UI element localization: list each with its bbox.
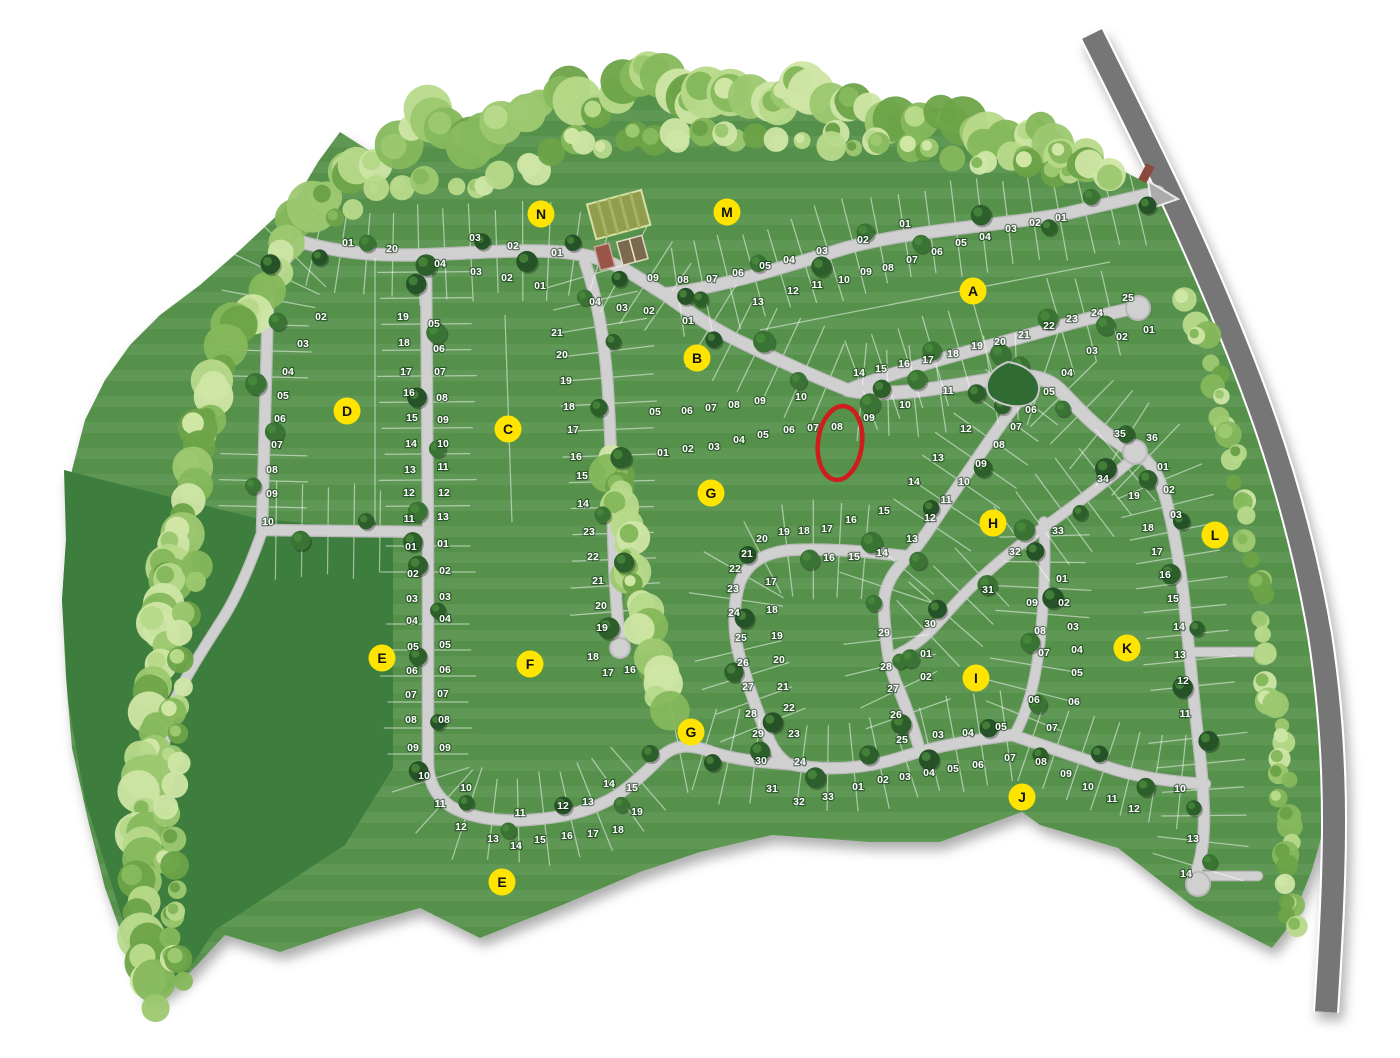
lot-number-A-24[interactable]: 24 [1091,307,1103,319]
lot-number-C-09[interactable]: 09 [437,414,449,426]
lot-number-A-16[interactable]: 16 [898,358,910,370]
lot-number-I-02[interactable]: 02 [920,671,932,683]
lot-number-G-27[interactable]: 27 [887,683,899,695]
lot-number-C-06[interactable]: 06 [433,343,445,355]
section-badge-L[interactable]: L [1202,522,1229,549]
lot-number-I-05[interactable]: 05 [995,721,1007,733]
lot-number-G-upper-08[interactable]: 08 [831,421,843,433]
lot-number-D-01[interactable]: 01 [342,237,354,249]
lot-number-D-09[interactable]: 09 [266,488,278,500]
section-badge-J[interactable]: J [1009,784,1036,811]
svg-text:H: H [988,515,998,531]
lot-number-F-17[interactable]: 17 [602,667,614,679]
lot-number-A-23[interactable]: 23 [1066,313,1078,325]
lot-number-K-19[interactable]: 19 [1128,490,1140,502]
lot-number-G-17[interactable]: 17 [821,523,833,535]
section-badge-H[interactable]: H [980,510,1007,537]
lot-number-I-03[interactable]: 03 [932,729,944,741]
lot-number-G-16[interactable]: 16 [845,514,857,526]
lot-number-B-02[interactable]: 02 [643,305,655,317]
lot-number-B-05[interactable]: 05 [649,406,661,418]
section-badge-D[interactable]: D [334,398,361,425]
lot-number-G-19[interactable]: 19 [778,526,790,538]
lot-number-G-32[interactable]: 32 [793,796,805,808]
lot-number-F-17[interactable]: 17 [587,828,599,840]
svg-text:F: F [526,656,535,672]
lot-number-L-02[interactable]: 02 [1163,484,1175,496]
lot-number-I-08[interactable]: 08 [1034,625,1046,637]
lot-number-I-06[interactable]: 06 [1028,694,1040,706]
lot-number-N-03[interactable]: 03 [469,232,481,244]
lot-number-J-04[interactable]: 04 [923,767,935,779]
lot-number-J-05[interactable]: 05 [947,763,959,775]
section-badge-G[interactable]: G [678,719,705,746]
lot-number-F-06[interactable]: 06 [439,664,451,676]
svg-text:C: C [503,421,513,437]
lot-number-K-15[interactable]: 15 [1167,593,1179,605]
lot-number-C-12[interactable]: 12 [438,487,450,499]
cul-de-sac [611,639,629,657]
lot-number-G-28[interactable]: 28 [745,708,757,720]
section-badge-C[interactable]: C [495,416,522,443]
lot-number-A-12[interactable]: 12 [787,285,799,297]
lot-number-B-04[interactable]: 04 [589,296,601,308]
lot-number-K-07[interactable]: 07 [1046,722,1058,734]
lot-number-E-04[interactable]: 04 [406,615,418,627]
lot-number-C-13[interactable]: 13 [437,511,449,523]
lot-number-D-11[interactable]: 11 [403,513,414,525]
svg-text:G: G [686,724,697,740]
lot-number-H-col-08[interactable]: 08 [993,439,1005,451]
lot-number-A-08[interactable]: 08 [882,262,894,274]
lot-number-M-07[interactable]: 07 [706,273,718,285]
lot-number-J-12[interactable]: 12 [1128,803,1140,815]
lot-number-I-07[interactable]: 07 [1038,647,1050,659]
lot-number-N-02[interactable]: 02 [501,272,513,284]
lot-number-F-07[interactable]: 07 [437,688,449,700]
lot-number-K-04[interactable]: 04 [1071,644,1083,656]
lot-number-K-13[interactable]: 13 [1174,649,1186,661]
lot-number-A-13[interactable]: 13 [752,296,764,308]
lot-number-A-09[interactable]: 09 [860,266,872,278]
lot-number-C-17[interactable]: 17 [567,424,579,436]
section-badge-I[interactable]: I [963,665,990,692]
lot-number-J-07[interactable]: 07 [1004,752,1016,764]
lot-number-G-18[interactable]: 18 [798,525,810,537]
lot-number-C-14[interactable]: 14 [577,498,589,510]
lot-number-H-col-13[interactable]: 13 [906,533,918,545]
lot-number-E-11[interactable]: 11 [434,798,445,810]
lot-number-I-01[interactable]: 01 [920,648,932,660]
lot-number-G-23[interactable]: 23 [788,728,800,740]
lot-number-E-09[interactable]: 09 [407,742,419,754]
lot-number-H-col-06[interactable]: 06 [1025,404,1037,416]
lot-number-K-10[interactable]: 10 [1174,783,1186,795]
lot-number-B-10[interactable]: 10 [795,391,807,403]
lot-number-A-05[interactable]: 05 [955,237,967,249]
lot-number-K-17[interactable]: 17 [1151,546,1163,558]
lot-number-C-05[interactable]: 05 [428,318,440,330]
lot-number-K-06[interactable]: 06 [1068,696,1080,708]
lot-number-A-14[interactable]: 14 [853,367,865,379]
lot-number-G-15[interactable]: 15 [878,505,890,517]
lot-number-G-20[interactable]: 20 [773,654,785,666]
lot-number-A-03[interactable]: 03 [1005,223,1017,235]
lot-number-M-02[interactable]: 02 [857,234,869,246]
svg-text:J: J [1018,789,1026,805]
lot-number-D-20[interactable]: 20 [386,243,398,255]
lot-number-D-15[interactable]: 15 [406,412,418,424]
lot-number-H-col-02[interactable]: 02 [1116,331,1128,343]
svg-text:D: D [342,403,352,419]
lot-number-B-06[interactable]: 06 [681,405,693,417]
lot-number-M-01[interactable]: 01 [899,218,911,230]
lot-number-A-07[interactable]: 07 [906,254,918,266]
lot-number-G-16[interactable]: 16 [823,552,835,564]
lot-number-C-11[interactable]: 11 [437,461,448,473]
lot-number-A-04[interactable]: 04 [979,231,991,243]
lot-number-B-07[interactable]: 07 [705,402,717,414]
svg-text:N: N [536,206,546,222]
lot-number-H-col-10[interactable]: 10 [899,399,911,411]
lot-number-K-12[interactable]: 12 [1177,675,1189,687]
lot-number-C-08[interactable]: 08 [436,392,448,404]
lot-number-J-06[interactable]: 06 [972,759,984,771]
lot-number-A-17[interactable]: 17 [922,354,934,366]
lot-number-D-10[interactable]: 10 [262,516,274,528]
lot-number-H-col-07[interactable]: 07 [1010,421,1022,433]
lot-number-G-33[interactable]: 33 [822,791,834,803]
svg-text:L: L [1211,527,1220,543]
lot-number-G-30[interactable]: 30 [755,755,767,767]
lot-number-K-14[interactable]: 14 [1180,868,1192,880]
lot-number-G-17[interactable]: 17 [765,576,777,588]
lot-number-E-06[interactable]: 06 [406,665,418,677]
lot-number-G-22[interactable]: 22 [783,702,795,714]
lot-number-G-25[interactable]: 25 [735,632,747,644]
lot-number-F-11[interactable]: 11 [514,807,525,819]
lot-number-B-01[interactable]: 01 [682,315,694,327]
lot-number-E-05[interactable]: 05 [407,641,419,653]
lot-number-D-16[interactable]: 16 [403,387,415,399]
lot-number-G-25[interactable]: 25 [896,734,908,746]
lot-number-M-05[interactable]: 05 [759,260,771,272]
lot-number-G-15[interactable]: 15 [848,551,860,563]
lot-number-J-10[interactable]: 10 [1082,781,1094,793]
lot-number-G-24[interactable]: 24 [794,756,806,768]
lot-number-F-21[interactable]: 21 [592,575,604,587]
lot-number-D-14[interactable]: 14 [405,438,417,450]
lot-number-K-05[interactable]: 05 [1071,667,1083,679]
lot-number-C-20[interactable]: 20 [556,349,568,361]
svg-text:B: B [692,350,702,366]
lot-number-A-18[interactable]: 18 [947,348,959,360]
lot-number-J-03[interactable]: 03 [899,771,911,783]
lot-number-K-14[interactable]: 14 [1173,621,1185,633]
lot-number-D-07[interactable]: 07 [271,439,283,451]
lot-number-D-02[interactable]: 02 [315,311,327,323]
lot-number-A-01[interactable]: 01 [1055,212,1067,224]
lot-number-A-22[interactable]: 22 [1043,320,1055,332]
lot-number-G-29[interactable]: 29 [878,627,890,639]
section-badge-K[interactable]: K [1114,635,1141,662]
lot-number-G-21[interactable]: 21 [777,681,789,693]
lot-number-H-ridge-33[interactable]: 33 [1052,525,1064,537]
lot-number-F-13[interactable]: 13 [582,796,594,808]
lot-number-H-col-01[interactable]: 01 [1143,324,1155,336]
lot-number-A-02[interactable]: 02 [1029,217,1041,229]
lot-number-F-10[interactable]: 10 [460,782,472,794]
lot-number-H-ridge-35[interactable]: 35 [1114,428,1126,440]
lot-number-C-16[interactable]: 16 [570,451,582,463]
lot-number-H-col-12[interactable]: 12 [924,512,936,524]
lot-number-G-upper-02[interactable]: 02 [682,443,694,455]
lot-number-E-08[interactable]: 08 [405,714,417,726]
svg-text:I: I [974,670,978,686]
lot-number-C-19[interactable]: 19 [560,375,572,387]
lot-number-D-05[interactable]: 05 [277,390,289,402]
lot-number-G-upper-07[interactable]: 07 [807,422,819,434]
lot-number-N-03[interactable]: 03 [470,266,482,278]
lot-number-M-03[interactable]: 03 [816,245,828,257]
lot-number-D-13[interactable]: 13 [404,464,416,476]
lot-number-F-03[interactable]: 03 [439,591,451,603]
lot-number-H-ridge-34[interactable]: 34 [1097,473,1109,485]
section-badge-N[interactable]: N [528,201,555,228]
lot-number-H-ridge-36[interactable]: 36 [1146,432,1158,444]
lot-number-L-03[interactable]: 03 [1170,509,1182,521]
lot-number-G-18[interactable]: 18 [766,604,778,616]
lot-number-G-26[interactable]: 26 [737,657,749,669]
lot-number-G-29[interactable]: 29 [752,728,764,740]
lot-number-N-02[interactable]: 02 [507,240,519,252]
lot-number-J-01[interactable]: 01 [852,781,864,793]
subdivision-map-stage: 0102030405060708091020191817161514131211… [0,0,1400,1058]
lot-number-G-21[interactable]: 21 [741,548,753,560]
lot-number-F-02[interactable]: 02 [439,565,451,577]
lot-number-E-03[interactable]: 03 [406,593,418,605]
lot-number-K-11[interactable]: 11 [1179,708,1190,720]
lot-number-K-02[interactable]: 02 [1058,597,1070,609]
lot-number-H-col-09[interactable]: 09 [863,412,875,424]
lot-number-A-25[interactable]: 25 [1122,292,1134,304]
lot-number-A-19[interactable]: 19 [971,340,983,352]
lot-number-J-09[interactable]: 09 [1060,768,1072,780]
lot-number-H-ridge-31[interactable]: 31 [982,584,994,596]
lot-number-F-16[interactable]: 16 [624,664,636,676]
lot-number-A-06[interactable]: 06 [931,246,943,258]
svg-text:E: E [377,650,386,666]
lot-number-F-18[interactable]: 18 [587,651,599,663]
lot-number-K-13[interactable]: 13 [1187,833,1199,845]
lot-number-F-05[interactable]: 05 [439,639,451,651]
lot-number-K-03[interactable]: 03 [1067,621,1079,633]
lot-number-H-col-10[interactable]: 10 [958,476,970,488]
lot-number-G-27[interactable]: 27 [742,681,754,693]
site-map: 0102030405060708091020191817161514131211… [0,0,1400,1058]
lot-number-J-08[interactable]: 08 [1035,756,1047,768]
lot-number-G-upper-04[interactable]: 04 [733,434,745,446]
lot-number-K-18[interactable]: 18 [1142,522,1154,534]
lot-number-G-upper-05[interactable]: 05 [757,429,769,441]
lot-number-K-01[interactable]: 01 [1056,573,1068,585]
lot-number-G-upper-03[interactable]: 03 [708,441,720,453]
lot-number-F-16[interactable]: 16 [561,830,573,842]
lot-number-G-upper-06[interactable]: 06 [783,424,795,436]
lot-number-C-15[interactable]: 15 [576,470,588,482]
lot-number-F-20[interactable]: 20 [595,600,607,612]
section-badge-M[interactable]: M [714,199,741,226]
lot-number-G-20[interactable]: 20 [756,533,768,545]
lot-number-D-18[interactable]: 18 [398,337,410,349]
lot-number-G-14[interactable]: 14 [876,547,888,559]
lot-number-H-col-12[interactable]: 12 [960,423,972,435]
lot-number-J-02[interactable]: 02 [877,774,889,786]
svg-text:E: E [497,874,506,890]
lot-number-G-28[interactable]: 28 [880,661,892,673]
lot-number-H-col-04[interactable]: 04 [1061,367,1073,379]
lot-number-F-19[interactable]: 19 [596,622,608,634]
lot-number-L-01[interactable]: 01 [1157,461,1169,473]
lot-number-C-10[interactable]: 10 [437,438,449,450]
lot-number-F-23[interactable]: 23 [583,526,595,538]
lot-number-C-18[interactable]: 18 [563,401,575,413]
lot-number-D-03[interactable]: 03 [297,338,309,350]
lot-number-H-col-03[interactable]: 03 [1086,345,1098,357]
lot-number-H-col-13[interactable]: 13 [932,452,944,464]
lot-number-I-09[interactable]: 09 [1026,597,1038,609]
lot-number-F-04[interactable]: 04 [439,613,451,625]
lot-number-H-col-11[interactable]: 11 [942,385,953,397]
lot-number-E-07[interactable]: 07 [405,689,417,701]
lot-number-H-col-14[interactable]: 14 [908,476,920,488]
section-badge-G[interactable]: G [698,480,725,507]
lot-number-F-22[interactable]: 22 [587,551,599,563]
lot-number-E-01[interactable]: 01 [405,541,417,553]
lot-number-H-col-09[interactable]: 09 [975,458,987,470]
lot-number-E-14[interactable]: 14 [510,840,522,852]
lot-number-C-07[interactable]: 07 [434,366,446,378]
lot-number-D-17[interactable]: 17 [400,366,412,378]
lot-number-F-18[interactable]: 18 [612,824,624,836]
lot-number-G-24[interactable]: 24 [728,607,740,619]
lot-number-F-08[interactable]: 08 [438,714,450,726]
lot-number-A-10[interactable]: 10 [838,274,850,286]
lot-number-B-03[interactable]: 03 [616,302,628,314]
lot-number-H-col-05[interactable]: 05 [1043,386,1055,398]
lot-number-G-22[interactable]: 22 [729,563,741,575]
lot-number-H-ridge-32[interactable]: 32 [1009,546,1021,558]
lot-number-A-21[interactable]: 21 [1018,329,1030,341]
lot-number-A-20[interactable]: 20 [994,336,1006,348]
lot-number-F-01[interactable]: 01 [437,538,449,550]
lot-number-G-31[interactable]: 31 [766,783,778,795]
lot-number-D-04[interactable]: 04 [282,366,294,378]
lot-number-G-upper-01[interactable]: 01 [657,447,669,459]
lot-number-B-09[interactable]: 09 [754,395,766,407]
lot-number-M-04[interactable]: 04 [783,254,795,266]
lot-number-D-12[interactable]: 12 [403,487,415,499]
lot-number-G-30[interactable]: 30 [924,618,936,630]
svg-text:M: M [721,204,733,220]
lot-number-D-19[interactable]: 19 [397,311,409,323]
lot-number-G-19[interactable]: 19 [771,630,783,642]
lot-number-M-08[interactable]: 08 [677,274,689,286]
section-badge-E[interactable]: E [489,869,516,896]
lot-number-F-09[interactable]: 09 [439,742,451,754]
lot-number-B-08[interactable]: 08 [728,399,740,411]
lot-number-K-16[interactable]: 16 [1159,569,1171,581]
lot-number-A-15[interactable]: 15 [875,363,887,375]
lot-number-I-04[interactable]: 04 [962,727,974,739]
lot-number-N-01[interactable]: 01 [551,247,563,259]
section-badge-E[interactable]: E [369,645,396,672]
section-badge-B[interactable]: B [684,345,711,372]
lot-number-G-23[interactable]: 23 [727,583,739,595]
lot-number-F-12[interactable]: 12 [557,800,569,812]
lot-number-N-01[interactable]: 01 [534,280,546,292]
lot-number-G-26[interactable]: 26 [890,709,902,721]
lot-number-F-14[interactable]: 14 [603,778,615,790]
svg-text:K: K [1122,640,1132,656]
lot-number-E-13[interactable]: 13 [487,833,499,845]
lot-number-C-21[interactable]: 21 [551,327,563,339]
lot-number-J-11[interactable]: 11 [1106,793,1117,805]
lot-number-D-08[interactable]: 08 [266,464,278,476]
lot-number-E-10[interactable]: 10 [418,770,430,782]
lot-number-N-04[interactable]: 04 [434,258,446,270]
lot-number-E-02[interactable]: 02 [407,568,419,580]
lot-number-M-06[interactable]: 06 [732,267,744,279]
svg-text:A: A [968,283,978,299]
section-badge-F[interactable]: F [517,651,544,678]
lot-number-A-11[interactable]: 11 [811,279,822,291]
lot-number-E-12[interactable]: 12 [455,821,467,833]
svg-text:G: G [706,485,717,501]
section-badge-A[interactable]: A [960,278,987,305]
lot-number-M-09[interactable]: 09 [647,272,659,284]
lot-number-H-col-11[interactable]: 11 [940,494,951,506]
lot-number-F-19[interactable]: 19 [631,806,643,818]
lot-number-F-15[interactable]: 15 [626,782,638,794]
lot-number-D-06[interactable]: 06 [274,413,286,425]
lot-number-F-15[interactable]: 15 [534,834,546,846]
